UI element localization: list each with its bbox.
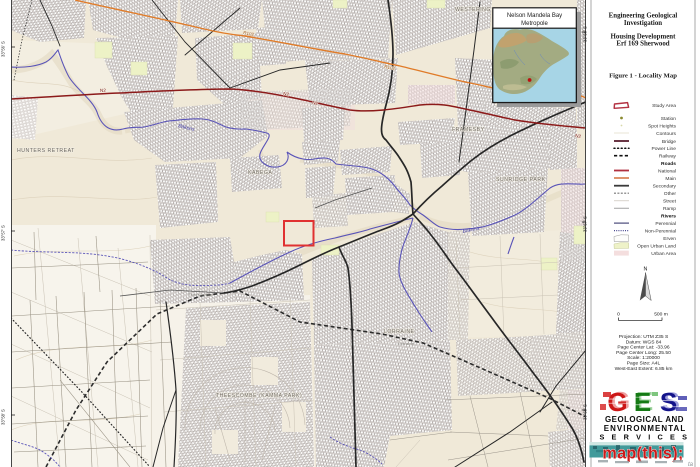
- svg-text:Nelson Mandela Bay: Nelson Mandela Bay: [507, 13, 562, 19]
- svg-text:Page Center Long: 25.50: Page Center Long: 25.50: [616, 350, 671, 356]
- svg-text:Other: Other: [664, 191, 677, 197]
- svg-text:33°56' S: 33°56' S: [1, 41, 6, 57]
- svg-text:Non-Perennial: Non-Perennial: [645, 229, 676, 235]
- svg-text:HUNTERS RETREAT: HUNTERS RETREAT: [17, 148, 75, 154]
- svg-text:33°56' S: 33°56' S: [583, 26, 588, 42]
- svg-text:Rivers: Rivers: [661, 214, 676, 220]
- svg-text:Page Center Lat: -33.96: Page Center Lat: -33.96: [617, 345, 669, 351]
- svg-text:Ramp: Ramp: [663, 206, 676, 212]
- svg-text:Projection: UTM Z35 S: Projection: UTM Z35 S: [619, 334, 669, 340]
- svg-text:Datum: WGS 84: Datum: WGS 84: [626, 339, 662, 345]
- svg-text:Station: Station: [661, 116, 677, 122]
- svg-text:0: 0: [617, 312, 620, 318]
- svg-text:WESTERING: WESTERING: [455, 7, 491, 13]
- svg-text:33°58' S: 33°58' S: [1, 409, 6, 425]
- svg-text:33°58' S: 33°58' S: [583, 404, 588, 420]
- svg-text:Figure 1 - Locality Map: Figure 1 - Locality Map: [609, 72, 677, 79]
- svg-text:Engineering Geological: Engineering Geological: [609, 13, 678, 20]
- svg-text:Investigation: Investigation: [624, 20, 662, 27]
- svg-text:Erven: Erven: [663, 236, 676, 242]
- svg-text:Open Urban Land: Open Urban Land: [637, 244, 676, 250]
- svg-text:G: G: [607, 387, 627, 417]
- svg-text:Theescombe: Theescombe: [188, 293, 213, 297]
- svg-text:Page Size: A4L: Page Size: A4L: [627, 361, 661, 367]
- svg-text:GEOLOGICAL AND: GEOLOGICAL AND: [605, 415, 684, 424]
- svg-text:LORRAINE: LORRAINE: [384, 329, 415, 335]
- svg-text:Secondary: Secondary: [653, 184, 677, 190]
- svg-text:Metropole: Metropole: [521, 21, 548, 27]
- svg-text:S E R V I C E S: S E R V I C E S: [599, 432, 689, 441]
- svg-text:THEESCOMBE (KAMMA PARK): THEESCOMBE (KAMMA PARK): [216, 393, 302, 399]
- svg-text:Spot Heights: Spot Heights: [648, 124, 677, 130]
- svg-text:ta: ta: [688, 462, 694, 467]
- svg-text:Scale: 1:20000: Scale: 1:20000: [627, 355, 660, 361]
- svg-text:Bridge: Bridge: [662, 139, 676, 145]
- svg-text:Urban Area: Urban Area: [651, 251, 676, 257]
- svg-text:E: E: [634, 387, 651, 417]
- svg-text:Main: Main: [665, 176, 676, 182]
- svg-text:FRAMESBY: FRAMESBY: [452, 127, 485, 133]
- svg-text:map(this);: map(this);: [602, 445, 683, 463]
- svg-text:KABEGA: KABEGA: [248, 170, 272, 176]
- svg-text:Railway: Railway: [659, 154, 677, 160]
- svg-text:Lorraine: Lorraine: [398, 342, 414, 346]
- svg-text:S: S: [660, 387, 677, 417]
- svg-text:Power Line: Power Line: [652, 146, 677, 152]
- svg-text:West-East Extent: 6.85 km: West-East Extent: 6.85 km: [615, 366, 673, 372]
- svg-text:SUNRIDGE PARK: SUNRIDGE PARK: [496, 177, 546, 183]
- svg-text:33°57' S: 33°57' S: [1, 225, 6, 241]
- svg-text:500 m: 500 m: [654, 312, 668, 318]
- svg-text:33°57' S: 33°57' S: [583, 216, 588, 232]
- svg-text:National: National: [658, 169, 676, 175]
- svg-text:Roads: Roads: [661, 161, 676, 167]
- svg-text:Study Area: Study Area: [652, 103, 676, 109]
- svg-text:N: N: [644, 267, 648, 273]
- svg-text:N2: N2: [100, 88, 106, 93]
- svg-text:Erf 169 Sherwood: Erf 169 Sherwood: [616, 40, 669, 47]
- svg-text:Street: Street: [663, 199, 677, 205]
- svg-text:Perennial: Perennial: [655, 221, 676, 227]
- svg-text:Contours: Contours: [656, 131, 676, 137]
